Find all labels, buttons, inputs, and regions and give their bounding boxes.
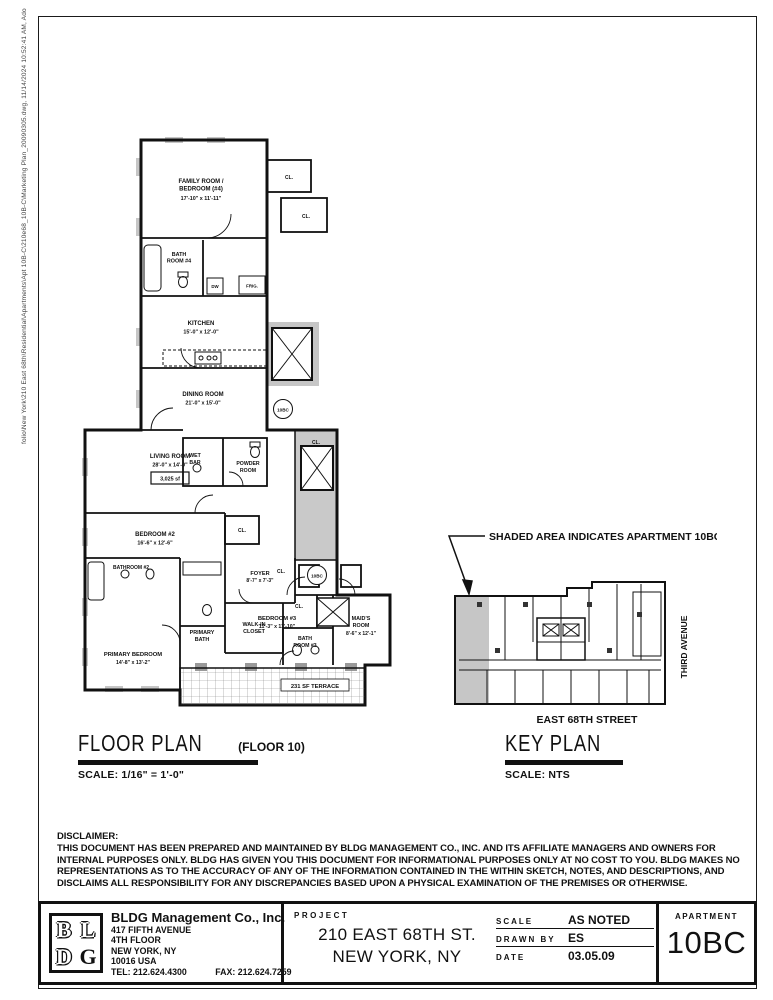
appliance-label-frig: FRIG.: [246, 284, 258, 289]
company-name: BLDG Management Co., Inc.: [111, 910, 292, 925]
meta-row-drawn-by: DRAWN BY ES: [496, 929, 654, 947]
shaded-apartment-area: [455, 596, 489, 704]
room-label-primarybedroom: PRIMARY BEDROOM: [104, 652, 162, 658]
project-line2: NEW YORK, NY: [293, 946, 501, 968]
disclaimer-line: DISCLAIMS ALL RESPONSIBILITY FOR ANY DIS…: [57, 878, 749, 890]
floor-plan-title-rule: [78, 760, 258, 765]
key-plan-title: KEY PLAN: [505, 730, 601, 757]
room-label-bathroom2: BATHROOM #2: [113, 565, 149, 571]
room-dims-kitchen: 15'-0" x 12'-0": [183, 330, 219, 336]
room-label-wetbar: WET: [189, 453, 201, 459]
drawing-sheet: folio\New York\210 East 68th\Residential…: [0, 0, 773, 1000]
logo-letter: D: [52, 943, 76, 970]
appliance-label-dw: DW: [211, 284, 219, 289]
scale-value: AS NOTED: [568, 913, 630, 927]
building-interior-walls: [459, 584, 661, 704]
unit-tag: 10BC: [277, 408, 289, 413]
closet-label: CL.: [238, 528, 247, 534]
key-plan-scale: SCALE: NTS: [505, 769, 625, 781]
room-label-powder2: ROOM: [240, 468, 256, 474]
floor-plan-scale: SCALE: 1/16" = 1'-0": [78, 769, 305, 781]
annotation-arrow: [449, 536, 485, 594]
room-label-terrace: 231 SF TERRACE: [291, 684, 339, 690]
company-tel: TEL: 212.624.4300: [111, 967, 187, 977]
drawn-by-value: ES: [568, 931, 584, 945]
fixtures-group: [88, 245, 319, 656]
disclaimer-line: REPRESENTATIONS AS TO THE ACCURACY OF AN…: [57, 866, 749, 878]
drawing-meta-table: SCALE AS NOTED DRAWN BY ES DATE 03.05.09: [496, 911, 654, 964]
closet-label: CL.: [312, 440, 321, 446]
room-dims-family: 17'-10" x 11'-11": [181, 196, 222, 202]
room-label-bath4: BATH: [172, 252, 187, 258]
project-name: 210 EAST 68TH ST. NEW YORK, NY: [293, 924, 501, 968]
terrace: 231 SF TERRACE: [180, 668, 365, 705]
street-label-third-avenue: THIRD AVENUE: [679, 615, 689, 678]
room-dims-primarybedroom: 14'-8" x 13'-2": [116, 660, 150, 666]
room-label-maids2: ROOM: [353, 623, 370, 629]
room-label-bedroom2: BEDROOM #2: [135, 532, 175, 538]
street-label-east-68th: EAST 68TH STREET: [537, 714, 639, 726]
closet-label: CL.: [277, 569, 286, 575]
room-label-family: FAMILY ROOM /: [178, 179, 223, 185]
title-block-divider: [281, 904, 284, 982]
floor-plan-drawing: 231 SF TERRACE 10BC 10BC FAMILY ROOM / B…: [55, 128, 400, 708]
company-address3: NEW YORK, NY: [111, 946, 292, 956]
apartment-label: APARTMENT: [659, 912, 754, 921]
disclaimer-heading: DISCLAIMER:: [57, 831, 749, 843]
company-address2: 4TH FLOOR: [111, 935, 292, 945]
floor-plan-title-suffix: (FLOOR 10): [238, 740, 305, 754]
disclaimer-line: THIS DOCUMENT HAS BEEN PREPARED AND MAIN…: [57, 843, 749, 855]
key-plan-title-rule: [505, 760, 623, 765]
plot-stamp: folio\New York\210 East 68th\Residential…: [21, 8, 33, 444]
project-label: PROJECT: [294, 911, 349, 920]
room-dims-maids: 8'-6" x 12'-1": [346, 631, 377, 637]
room-label-bath4b: ROOM #4: [167, 259, 191, 265]
disclaimer-line: INTERNAL PURPOSES ONLY. BLDG HAS GIVEN Y…: [57, 855, 749, 867]
floor-plan-title: FLOOR PLAN: [78, 730, 203, 757]
closet-label: CL.: [302, 214, 311, 220]
key-plan-annotation: SHADED AREA INDICATES APARTMENT 10BC: [489, 531, 717, 543]
apartment-section: APARTMENT 10BC: [659, 904, 754, 982]
room-dims-living: 28'-0" x 14'-0": [152, 463, 188, 469]
room-label-dining: DINING ROOM: [182, 392, 223, 398]
room-label-primarybath2: BATH: [195, 637, 210, 643]
key-plan-drawing: SHADED AREA INDICATES APARTMENT 10BC THI…: [437, 522, 717, 734]
meta-row-date: DATE 03.05.09: [496, 947, 654, 964]
room-label-foyer: FOYER: [250, 571, 269, 577]
room-label-living: LIVING ROOM: [150, 454, 190, 460]
date-value: 03.05.09: [568, 949, 615, 963]
room-label-maids: MAID'S: [352, 616, 371, 622]
project-line1: 210 EAST 68TH ST.: [293, 924, 501, 946]
drawn-by-label: DRAWN BY: [496, 935, 568, 944]
company-address4: 10016 USA: [111, 956, 292, 966]
company-address1: 417 FIFTH AVENUE: [111, 925, 292, 935]
room-label-bath3: BATH: [298, 636, 312, 642]
room-label-bath3b: ROOM #3: [293, 643, 316, 649]
unit-tag: 10BC: [311, 574, 323, 579]
room-label-family2: BEDROOM (#4): [179, 187, 223, 193]
room-dims-bedroom3: 11'-3" x 11'-10": [259, 624, 296, 630]
title-block: B L D G BLDG Management Co., Inc. 417 FI…: [38, 901, 757, 985]
room-label-wetbar2: BAR: [189, 460, 200, 466]
closet-label: CL.: [295, 604, 304, 610]
wall-shading-group: [82, 137, 357, 692]
area-label: 3,025 sf: [160, 477, 180, 483]
floor-plan-heading: FLOOR PLAN (FLOOR 10) SCALE: 1/16" = 1'-…: [78, 730, 305, 781]
room-label-kitchen: KITCHEN: [188, 321, 215, 327]
room-label-primarybath: PRIMARY: [190, 630, 215, 636]
apartment-number: 10BC: [659, 925, 754, 961]
bldg-logo: B L D G: [49, 913, 103, 973]
room-dims-dining: 21'-0" x 15'-0": [185, 401, 221, 407]
room-dims-foyer: 8'-7" x 7'-3": [246, 578, 274, 584]
closet-label: CL.: [285, 175, 294, 181]
logo-letter: G: [76, 943, 100, 970]
logo-letter: B: [52, 916, 76, 943]
room-label-powder: POWDER: [236, 461, 260, 467]
logo-letter: L: [76, 916, 100, 943]
scale-label: SCALE: [496, 917, 568, 926]
room-label-bedroom3: BEDROOM #3: [258, 616, 297, 622]
disclaimer-block: DISCLAIMER: THIS DOCUMENT HAS BEEN PREPA…: [57, 831, 749, 890]
company-info: BLDG Management Co., Inc. 417 FIFTH AVEN…: [111, 910, 292, 977]
key-plan-heading: KEY PLAN SCALE: NTS: [505, 730, 625, 781]
room-dims-bedroom2: 16'-6" x 12'-6": [137, 541, 173, 547]
date-label: DATE: [496, 953, 568, 962]
meta-row-scale: SCALE AS NOTED: [496, 911, 654, 929]
